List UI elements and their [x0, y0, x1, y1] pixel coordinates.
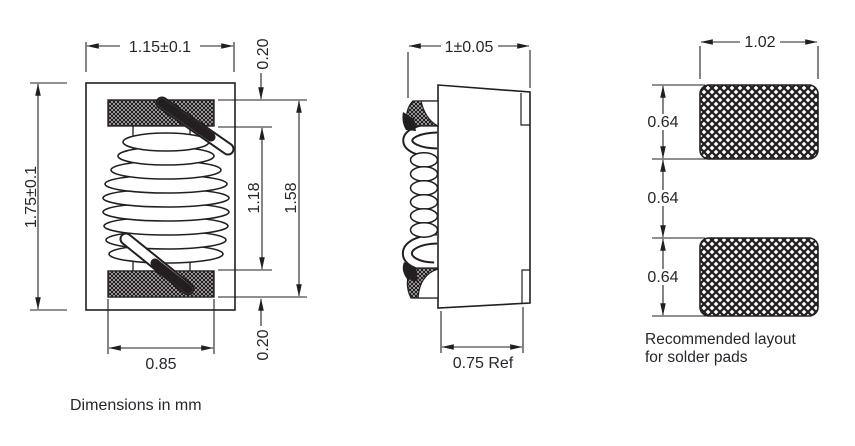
side-view: 1±0.05 0.75 Ref [402, 38, 530, 372]
dim-terminal-bottom: 0.20 [255, 299, 272, 361]
dim-front-height: 1.75±0.1 [23, 83, 67, 310]
dim-pad1-height: 0.64 [644, 86, 682, 158]
pad-caption-line2: for solder pads [645, 349, 748, 366]
side-terminal-bottom [403, 262, 438, 298]
pad2-height-label: 0.64 [647, 269, 678, 286]
pad-layout-caption: Recommended layout for solder pads [645, 331, 796, 366]
units-note: Dimensions in mm [70, 397, 202, 414]
terminal-top-thickness-label: 0.20 [255, 38, 272, 69]
dim-coil-window: 1.18 [246, 128, 263, 269]
dim-pad-width: 1.02 [700, 34, 818, 79]
dim-side-depth: 0.75 Ref [441, 307, 523, 372]
bottom-terminal-width-label: 0.85 [145, 356, 176, 373]
pad-gap-label: 0.64 [647, 190, 678, 207]
side-wire-loop-bottom [407, 239, 437, 267]
terminal-bottom-thickness-label: 0.20 [255, 329, 272, 360]
terminal-span-label: 1.58 [283, 182, 300, 213]
side-body [438, 85, 530, 308]
coil-window-label: 1.18 [246, 182, 263, 213]
side-depth-label: 0.75 Ref [453, 355, 514, 372]
dim-pad-gap: 0.64 [644, 160, 682, 237]
side-coil-bumps [411, 153, 438, 237]
solder-pad-bottom [700, 238, 818, 316]
pad-layout: 1.02 0.64 0.64 0.64 [644, 34, 818, 366]
pad-width-label: 1.02 [744, 34, 775, 51]
pad-caption-line1: Recommended layout [645, 331, 796, 348]
technical-drawing-page: 1.15±0.1 1.75±0.1 0.20 1.18 [0, 0, 855, 446]
side-wire-loop-top [408, 128, 437, 153]
pad1-height-label: 0.64 [647, 114, 678, 131]
side-terminal-top [402, 101, 438, 131]
front-width-label: 1.15±0.1 [129, 39, 191, 56]
front-view: 1.15±0.1 1.75±0.1 0.20 1.18 [23, 38, 307, 373]
front-height-label: 1.75±0.1 [23, 166, 40, 228]
dim-terminal-top: 0.20 [255, 38, 272, 99]
dim-front-width: 1.15±0.1 [86, 38, 234, 72]
dim-pad2-height: 0.64 [644, 239, 682, 315]
solder-pad-top [700, 85, 818, 159]
dim-terminal-span: 1.58 [283, 101, 300, 296]
side-width-label: 1±0.05 [445, 39, 494, 56]
inductor-dimension-drawing: 1.15±0.1 1.75±0.1 0.20 1.18 [0, 0, 855, 446]
